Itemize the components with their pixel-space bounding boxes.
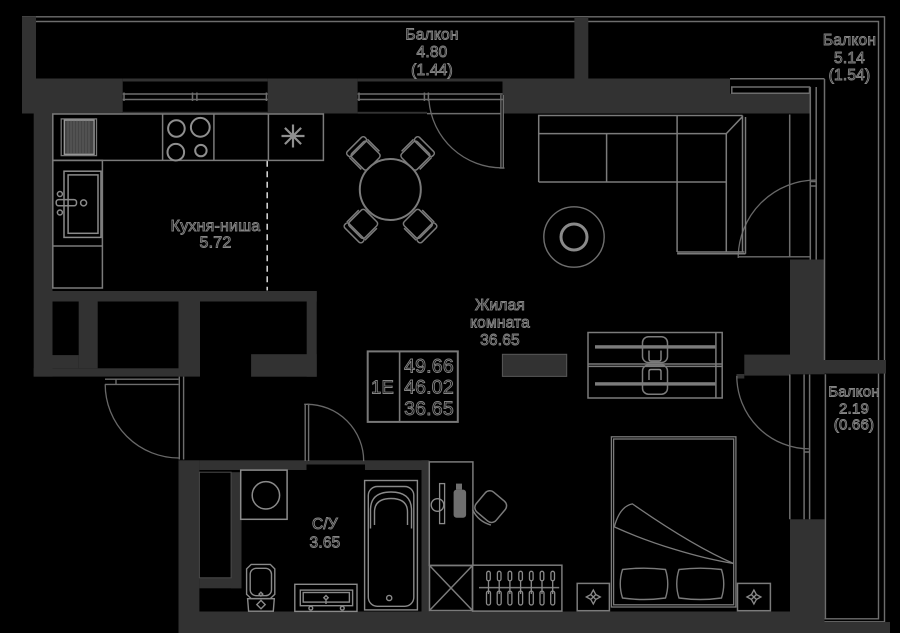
svg-text:(1.44): (1.44) <box>411 62 453 79</box>
svg-text:Балкон: Балкон <box>405 27 458 44</box>
svg-text:С/У: С/У <box>312 516 338 533</box>
svg-text:49.66: 49.66 <box>404 355 454 377</box>
svg-text:2.19: 2.19 <box>839 401 869 418</box>
svg-text:(0.66): (0.66) <box>834 417 874 434</box>
svg-text:36.65: 36.65 <box>480 332 520 349</box>
svg-text:36.65: 36.65 <box>404 398 454 420</box>
svg-text:(1.54): (1.54) <box>829 67 871 84</box>
svg-text:5.14: 5.14 <box>834 50 865 67</box>
svg-text:Кухня-ниша: Кухня-ниша <box>171 218 261 235</box>
svg-text:комната: комната <box>470 314 530 331</box>
svg-text:4.80: 4.80 <box>417 44 448 61</box>
svg-text:1Е: 1Е <box>371 376 394 397</box>
svg-text:Балкон: Балкон <box>823 32 876 49</box>
svg-text:5.72: 5.72 <box>200 235 232 252</box>
svg-text:3.65: 3.65 <box>310 534 341 551</box>
svg-text:Балкон: Балкон <box>828 384 880 401</box>
svg-text:46.02: 46.02 <box>404 377 454 399</box>
svg-text:Жилая: Жилая <box>475 297 525 314</box>
